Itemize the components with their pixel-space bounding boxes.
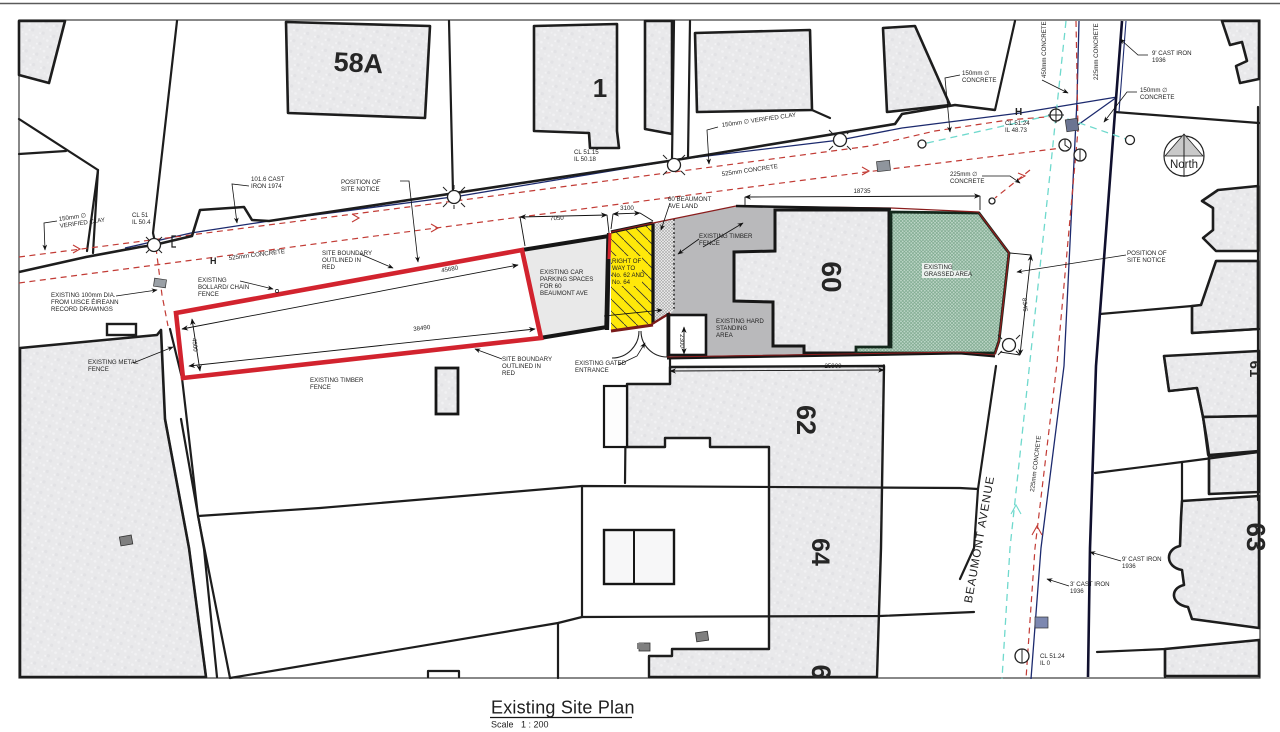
svg-text:SITE NOTICE: SITE NOTICE	[341, 186, 380, 193]
svg-text:PARKING SPACES: PARKING SPACES	[540, 276, 593, 283]
svg-text:FENCE: FENCE	[310, 384, 331, 391]
svg-text:6: 6	[806, 664, 836, 679]
svg-text:STANDING: STANDING	[716, 325, 747, 332]
svg-text:IL 0: IL 0	[1040, 660, 1051, 667]
svg-text:150mm ∅: 150mm ∅	[962, 70, 990, 77]
svg-text:CL 51: CL 51	[132, 212, 149, 219]
svg-text:EXISTING: EXISTING	[924, 264, 953, 271]
svg-text:450mm CONCRETE: 450mm CONCRETE	[1041, 21, 1048, 78]
svg-text:No. 64: No. 64	[612, 279, 631, 286]
svg-text:EXISTING GATED: EXISTING GATED	[575, 360, 627, 367]
svg-text:OUTLINED IN: OUTLINED IN	[502, 363, 541, 370]
svg-text:Scale 1 : 200: Scale 1 : 200	[491, 720, 549, 730]
svg-text:FENCE: FENCE	[198, 291, 219, 298]
svg-text:18735: 18735	[853, 188, 871, 195]
svg-text:1: 1	[593, 73, 607, 103]
svg-text:OUTLINED IN: OUTLINED IN	[322, 257, 361, 264]
svg-text:150mm ∅: 150mm ∅	[1140, 87, 1168, 94]
svg-text:SITE BOUNDARY: SITE BOUNDARY	[502, 356, 552, 363]
svg-text:25900: 25900	[824, 363, 842, 370]
svg-text:H: H	[1015, 107, 1022, 118]
svg-text:63: 63	[1241, 523, 1271, 552]
svg-text:No. 62 AND: No. 62 AND	[612, 272, 645, 279]
svg-text:BEAUMONT AVE: BEAUMONT AVE	[540, 290, 588, 297]
svg-text:9' CAST IRON: 9' CAST IRON	[1152, 50, 1192, 57]
svg-text:GRASSED AREA: GRASSED AREA	[924, 271, 973, 278]
svg-text:225mm CONCRETE: 225mm CONCRETE	[1093, 23, 1100, 80]
svg-text:60 BEAUMONT: 60 BEAUMONT	[668, 196, 712, 203]
svg-text:IL 50.18: IL 50.18	[574, 156, 597, 163]
svg-text:CONCRETE: CONCRETE	[962, 77, 996, 84]
svg-text:RECORD DRAWINGS: RECORD DRAWINGS	[51, 306, 113, 313]
svg-text:CL 51.24: CL 51.24	[1005, 120, 1030, 127]
svg-text:SITE NOTICE: SITE NOTICE	[1127, 257, 1166, 264]
svg-text:7050: 7050	[550, 215, 564, 222]
svg-text:64: 64	[806, 538, 834, 566]
svg-text:4500: 4500	[190, 338, 198, 353]
svg-text:EXISTING 100mm DIA.: EXISTING 100mm DIA.	[51, 292, 116, 299]
svg-text:EXISTING TIMBER: EXISTING TIMBER	[310, 377, 364, 384]
svg-text:EXISTING: EXISTING	[198, 277, 227, 284]
svg-text:8345: 8345	[1020, 298, 1028, 313]
svg-text:RIGHT OF: RIGHT OF	[612, 258, 641, 265]
svg-text:POSITION OF: POSITION OF	[1127, 250, 1167, 257]
svg-text:AREA: AREA	[716, 332, 734, 339]
svg-text:CONCRETE: CONCRETE	[950, 178, 984, 185]
svg-text:60: 60	[816, 261, 847, 292]
svg-text:225mm ∅: 225mm ∅	[950, 171, 978, 178]
svg-text:H: H	[210, 256, 217, 266]
svg-text:ENTRANCE: ENTRANCE	[575, 367, 609, 374]
svg-text:POSITION OF: POSITION OF	[341, 179, 381, 186]
svg-text:3100: 3100	[620, 205, 634, 212]
svg-text:3' CAST IRON: 3' CAST IRON	[1070, 581, 1110, 588]
svg-text:North: North	[1170, 159, 1198, 171]
svg-text:IRON 1974: IRON 1974	[251, 183, 282, 190]
svg-text:IL 48.73: IL 48.73	[1005, 127, 1028, 134]
svg-text:CL 51.24: CL 51.24	[1040, 653, 1065, 660]
svg-text:1936: 1936	[1122, 563, 1136, 570]
svg-text:FENCE: FENCE	[699, 240, 720, 247]
svg-text:62: 62	[791, 405, 821, 435]
svg-text:101.6 CAST: 101.6 CAST	[251, 176, 285, 183]
svg-text:IL 50.4: IL 50.4	[132, 219, 151, 226]
svg-text:EXISTING CAR: EXISTING CAR	[540, 269, 584, 276]
svg-text:EXISTING METAL: EXISTING METAL	[88, 359, 139, 366]
svg-text:WAY TO: WAY TO	[612, 265, 635, 272]
svg-text:Existing Site Plan: Existing Site Plan	[491, 698, 635, 718]
svg-text:FENCE: FENCE	[88, 366, 109, 373]
svg-text:CONCRETE: CONCRETE	[1140, 94, 1174, 101]
svg-text:RED: RED	[322, 264, 336, 271]
svg-text:RED: RED	[502, 370, 516, 377]
svg-text:EXISTING HARD: EXISTING HARD	[716, 318, 764, 325]
svg-text:CL 51.15: CL 51.15	[574, 149, 599, 156]
svg-text:58A: 58A	[333, 47, 384, 80]
svg-text:9' CAST IRON: 9' CAST IRON	[1122, 556, 1162, 563]
svg-text:FROM UISCE ÉIREANN: FROM UISCE ÉIREANN	[51, 299, 119, 306]
svg-text:2300: 2300	[678, 334, 685, 348]
svg-text:BOLLARD/ CHAIN: BOLLARD/ CHAIN	[198, 284, 249, 291]
svg-text:FOR 60: FOR 60	[540, 283, 562, 290]
svg-text:61: 61	[1246, 361, 1263, 378]
svg-text:1936: 1936	[1152, 57, 1166, 64]
svg-text:AVE LAND: AVE LAND	[668, 203, 698, 210]
svg-text:EXISTING TIMBER: EXISTING TIMBER	[699, 233, 753, 240]
svg-text:SITE BOUNDARY: SITE BOUNDARY	[322, 250, 372, 257]
svg-text:1936: 1936	[1070, 588, 1084, 595]
